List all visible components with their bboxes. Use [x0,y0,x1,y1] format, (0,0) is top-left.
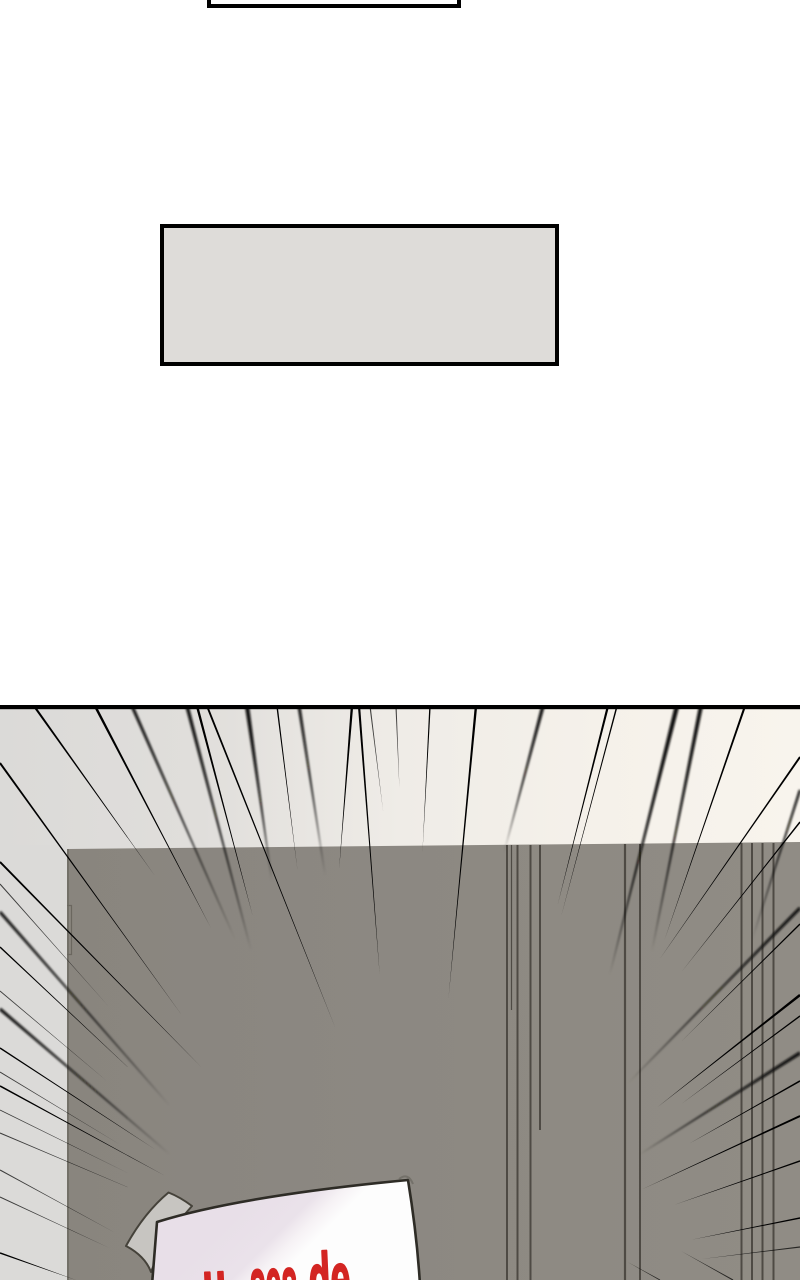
svg-text:de: de [307,1237,352,1280]
svg-text:ses: ses [248,1241,299,1280]
svg-text:u: u [201,1246,228,1280]
